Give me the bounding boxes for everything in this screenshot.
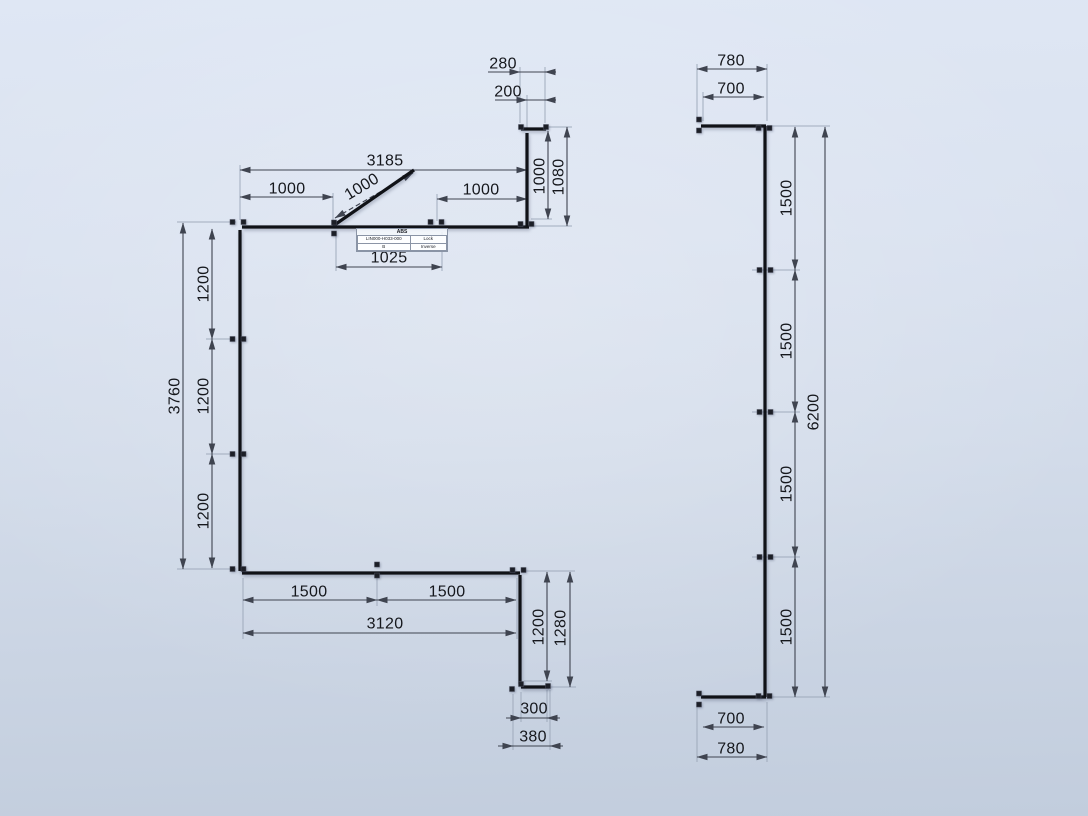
truss-connector [529, 222, 534, 227]
dimension-label: 1200 [196, 493, 213, 530]
dimension-label: 1000 [532, 158, 549, 195]
truss-connector [767, 694, 772, 699]
truss-connector [768, 268, 773, 273]
dimension-label: 1200 [531, 609, 548, 646]
cad-drawing-canvas[interactable]: 3185100010001000102528020010001080120012… [0, 0, 1088, 816]
truss-connector [375, 562, 380, 567]
truss-connector [697, 117, 702, 122]
dimension: 1080 [551, 127, 568, 226]
dimension: 300 [506, 701, 560, 719]
truss-connectors [697, 117, 774, 707]
dimension: 3760 [167, 223, 184, 569]
truss-connector [332, 231, 337, 236]
truss-connector [230, 220, 235, 225]
dimension: 280 [488, 56, 556, 73]
truss-connector [439, 220, 444, 225]
dimension: 1025 [336, 250, 442, 268]
truss-connector [510, 568, 515, 573]
dimension: 1500 [779, 557, 796, 697]
truss-members [240, 129, 549, 687]
truss-connector [519, 125, 524, 130]
truss-connector [241, 567, 246, 572]
truss-connector [697, 702, 702, 707]
dimension: 1500 [377, 584, 516, 601]
dimension: 700 [703, 711, 764, 728]
truss-connector [757, 268, 762, 273]
dimension-label: 1025 [371, 250, 408, 267]
truss-label-box: ABS LIN000-H033-000 Lock B Inverse [356, 228, 448, 252]
truss-connector [697, 128, 702, 133]
dimension-label: 1500 [779, 180, 796, 217]
truss-connector [375, 573, 380, 578]
truss-label-table: LIN000-H033-000 Lock B Inverse [357, 235, 447, 251]
dimension-label: 1500 [429, 584, 466, 601]
dimension-label: 1000 [342, 170, 382, 204]
truss-connector [768, 410, 773, 415]
dimension-label: 700 [717, 81, 745, 98]
dimension-label: 780 [717, 53, 745, 70]
truss-connector [544, 125, 549, 130]
dimension-label: 1500 [291, 584, 328, 601]
dimension: 1500 [779, 127, 796, 270]
truss-connector [757, 410, 762, 415]
truss-connector [241, 220, 246, 225]
render-viewport[interactable]: 3185100010001000102528020010001080120012… [0, 0, 1088, 816]
dimension: 1500 [243, 584, 377, 601]
dimension: 1000 [437, 182, 527, 200]
dimension: 1200 [531, 572, 548, 681]
truss-connector [519, 682, 524, 687]
truss-connector [757, 555, 762, 560]
truss-connector [332, 220, 337, 225]
truss-connector [518, 222, 523, 227]
truss-label-id: LIN000-H033-000 [358, 236, 411, 244]
shape-right: 78070015001500150015006200700780 [697, 53, 831, 763]
truss-label-row2-right: Inverse [410, 243, 446, 251]
truss-connector [767, 126, 772, 131]
truss-connector [241, 452, 246, 457]
dimension-label: 700 [717, 711, 745, 728]
dimension-label: 3760 [167, 378, 184, 415]
dimension-label: 1000 [463, 182, 500, 199]
dimension-label: 3120 [367, 616, 404, 633]
truss-connector [756, 126, 761, 131]
dimension-label: 1200 [196, 378, 213, 415]
dimension: 1500 [779, 412, 796, 557]
dimension: 1000 [532, 131, 549, 219]
dimension: 200 [494, 84, 556, 101]
dimension-label: 1500 [779, 609, 796, 646]
dimension: 1200 [196, 229, 213, 339]
dimension: 1280 [553, 572, 571, 687]
truss-connector [521, 568, 526, 573]
dimension-label: 6200 [806, 394, 823, 431]
truss-connector [230, 452, 235, 457]
truss-label-row2-left: B [358, 243, 411, 251]
dimension-label: 1000 [269, 181, 306, 198]
truss-connector [756, 694, 761, 699]
shape-left: 3185100010001000102528020010001080120012… [167, 56, 577, 751]
dimension-label: 300 [520, 701, 548, 718]
dimension: 6200 [806, 127, 826, 697]
dimension-label: 1500 [779, 466, 796, 503]
truss-connectors [230, 125, 551, 692]
dimension: 1000 [240, 181, 333, 198]
dimension-label: 780 [717, 741, 745, 758]
dimension: 3120 [243, 616, 516, 634]
truss-label-type: Lock [410, 236, 446, 244]
dimension-label: 1500 [779, 323, 796, 360]
dimension: 1200 [196, 339, 213, 454]
truss-connector [230, 567, 235, 572]
dimension-label: 1080 [551, 159, 568, 196]
dimension: 1500 [779, 270, 796, 412]
dimension-label: 1280 [553, 610, 570, 647]
dimension-label: 200 [494, 84, 522, 101]
truss-connector [697, 691, 702, 696]
dimension: 380 [498, 729, 563, 747]
truss-connector [428, 220, 433, 225]
dimension: 3185 [240, 153, 527, 171]
truss-connector [768, 555, 773, 560]
truss-connector [230, 337, 235, 342]
truss-connector [546, 684, 551, 689]
dimension-label: 380 [519, 729, 547, 746]
dimension: 780 [697, 741, 767, 758]
dimension: 780 [697, 53, 767, 70]
dimension-label: 1200 [196, 266, 213, 303]
dimension: 1200 [196, 454, 213, 568]
dimension-label: 280 [489, 56, 517, 73]
dimension-label: 3185 [367, 153, 404, 170]
truss-connector [241, 337, 246, 342]
truss-connector [510, 687, 515, 692]
dimension: 700 [703, 81, 764, 98]
